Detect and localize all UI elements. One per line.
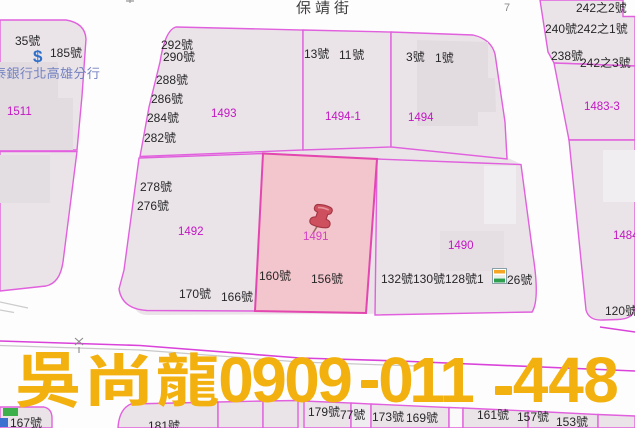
svg-text:166: 166: [221, 290, 241, 304]
svg-text:11: 11: [339, 48, 352, 62]
svg-text:282: 282: [144, 131, 164, 145]
svg-text:278: 278: [140, 180, 160, 194]
svg-text:1511: 1511: [7, 106, 32, 118]
svg-text:35: 35: [15, 34, 29, 48]
svg-text:242: 242: [577, 22, 597, 36]
svg-text:290: 290: [163, 50, 183, 64]
svg-text:128: 128: [445, 272, 465, 286]
svg-text:284: 284: [147, 111, 167, 125]
svg-text:13: 13: [304, 47, 318, 61]
svg-text:156: 156: [311, 272, 331, 286]
svg-text:1492: 1492: [178, 226, 204, 238]
svg-text:3: 3: [406, 50, 413, 64]
svg-text:132: 132: [381, 272, 401, 286]
svg-text:9: 9: [317, 344, 353, 416]
svg-text:1494-1: 1494-1: [325, 111, 361, 123]
svg-text:8: 8: [583, 344, 619, 416]
svg-text:4: 4: [548, 344, 584, 416]
svg-text:1491: 1491: [303, 231, 329, 243]
svg-text:120: 120: [605, 304, 625, 318]
svg-text:9: 9: [251, 344, 287, 416]
svg-text:185: 185: [50, 46, 70, 60]
svg-text:153: 153: [556, 415, 576, 428]
svg-text:1490: 1490: [448, 240, 474, 252]
svg-text:160: 160: [259, 269, 279, 283]
svg-text:286: 286: [151, 92, 171, 106]
svg-text:3: 3: [612, 56, 619, 70]
svg-text:0: 0: [218, 344, 254, 416]
svg-text:7: 7: [504, 2, 510, 14]
svg-text:1: 1: [435, 51, 442, 65]
svg-text:167: 167: [10, 416, 30, 428]
svg-text:2: 2: [608, 1, 615, 15]
svg-text:$: $: [33, 47, 43, 66]
svg-text:26: 26: [507, 273, 521, 287]
svg-text:161: 161: [477, 408, 497, 422]
svg-text:130: 130: [413, 272, 433, 286]
svg-text:240: 240: [545, 22, 565, 36]
svg-text:238: 238: [551, 49, 571, 63]
svg-text:4: 4: [513, 344, 549, 416]
svg-text:1483-3: 1483-3: [584, 101, 620, 113]
svg-text:181: 181: [148, 419, 168, 428]
svg-text:1484: 1484: [613, 230, 635, 242]
svg-text:288: 288: [156, 73, 176, 87]
svg-text:170: 170: [179, 287, 199, 301]
svg-text:276: 276: [137, 199, 157, 213]
svg-text:1: 1: [439, 344, 475, 416]
svg-text:1493: 1493: [211, 108, 237, 120]
svg-text:0: 0: [284, 344, 320, 416]
svg-text:242: 242: [580, 56, 600, 70]
svg-text:242: 242: [576, 1, 596, 15]
svg-text:1: 1: [477, 272, 484, 286]
svg-text:1494: 1494: [408, 112, 434, 124]
svg-text:1: 1: [609, 22, 616, 36]
